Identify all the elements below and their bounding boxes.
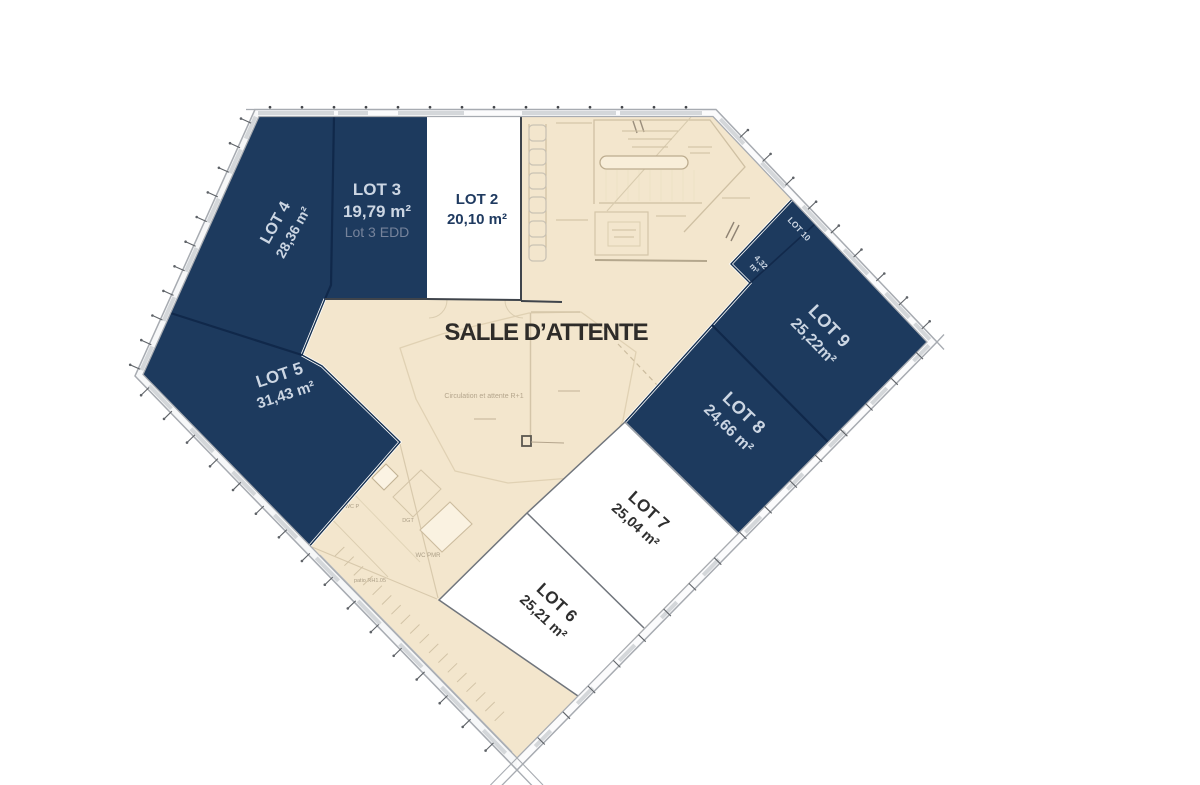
- svg-text:Circulation et attente R+1: Circulation et attente R+1: [444, 393, 523, 400]
- svg-text:LOT 2: LOT 2: [456, 191, 499, 208]
- svg-text:DGT: DGT: [402, 518, 414, 524]
- svg-text:Lot 3 EDD: Lot 3 EDD: [345, 224, 410, 240]
- svg-text:WC PMR: WC PMR: [416, 553, 442, 559]
- svg-text:19,79 m²: 19,79 m²: [343, 202, 411, 221]
- svg-text:LOT 3: LOT 3: [353, 180, 401, 199]
- svg-text:SALLE D’ATTENTE: SALLE D’ATTENTE: [444, 319, 648, 346]
- svg-text:20,10 m²: 20,10 m²: [447, 211, 507, 228]
